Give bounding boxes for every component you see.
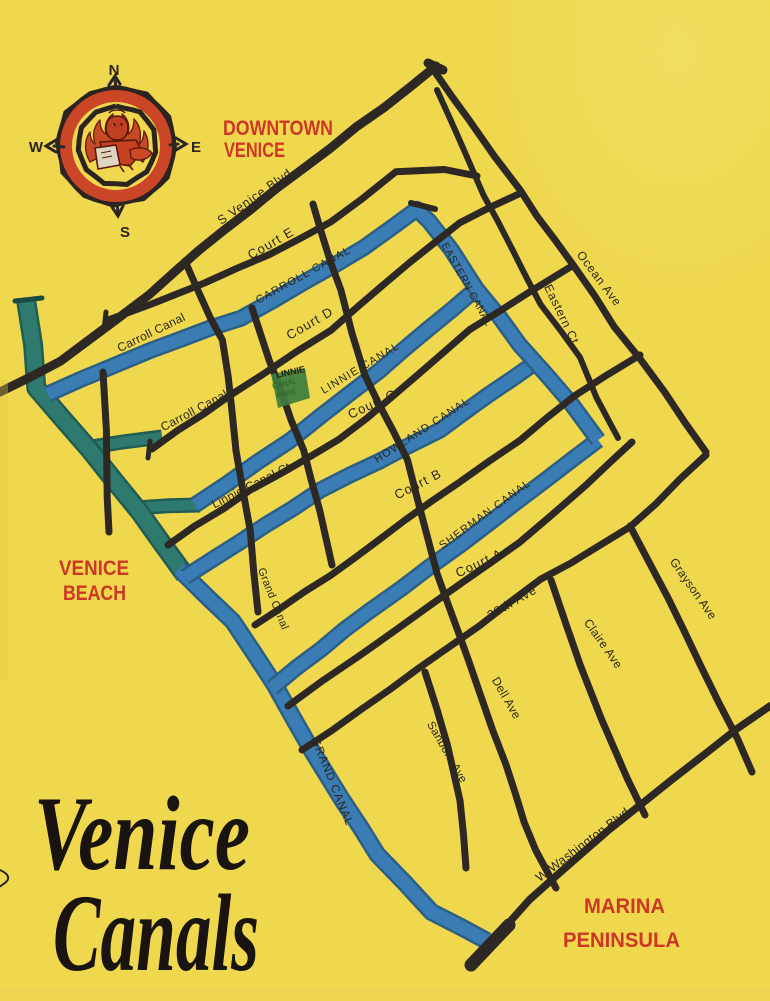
svg-text:N: N [109,62,120,79]
svg-text:MARINA: MARINA [584,895,665,918]
svg-text:S: S [120,224,130,241]
svg-text:PENINSULA: PENINSULA [563,929,680,952]
svg-text:VENICE: VENICE [59,557,129,580]
svg-text:Canals: Canals [53,872,259,994]
svg-text:BEACH: BEACH [63,582,126,605]
svg-text:DOWNTOWN: DOWNTOWN [223,117,333,140]
svg-text:VENICE: VENICE [224,139,285,162]
svg-text:E: E [191,139,201,156]
svg-text:W: W [29,139,44,156]
